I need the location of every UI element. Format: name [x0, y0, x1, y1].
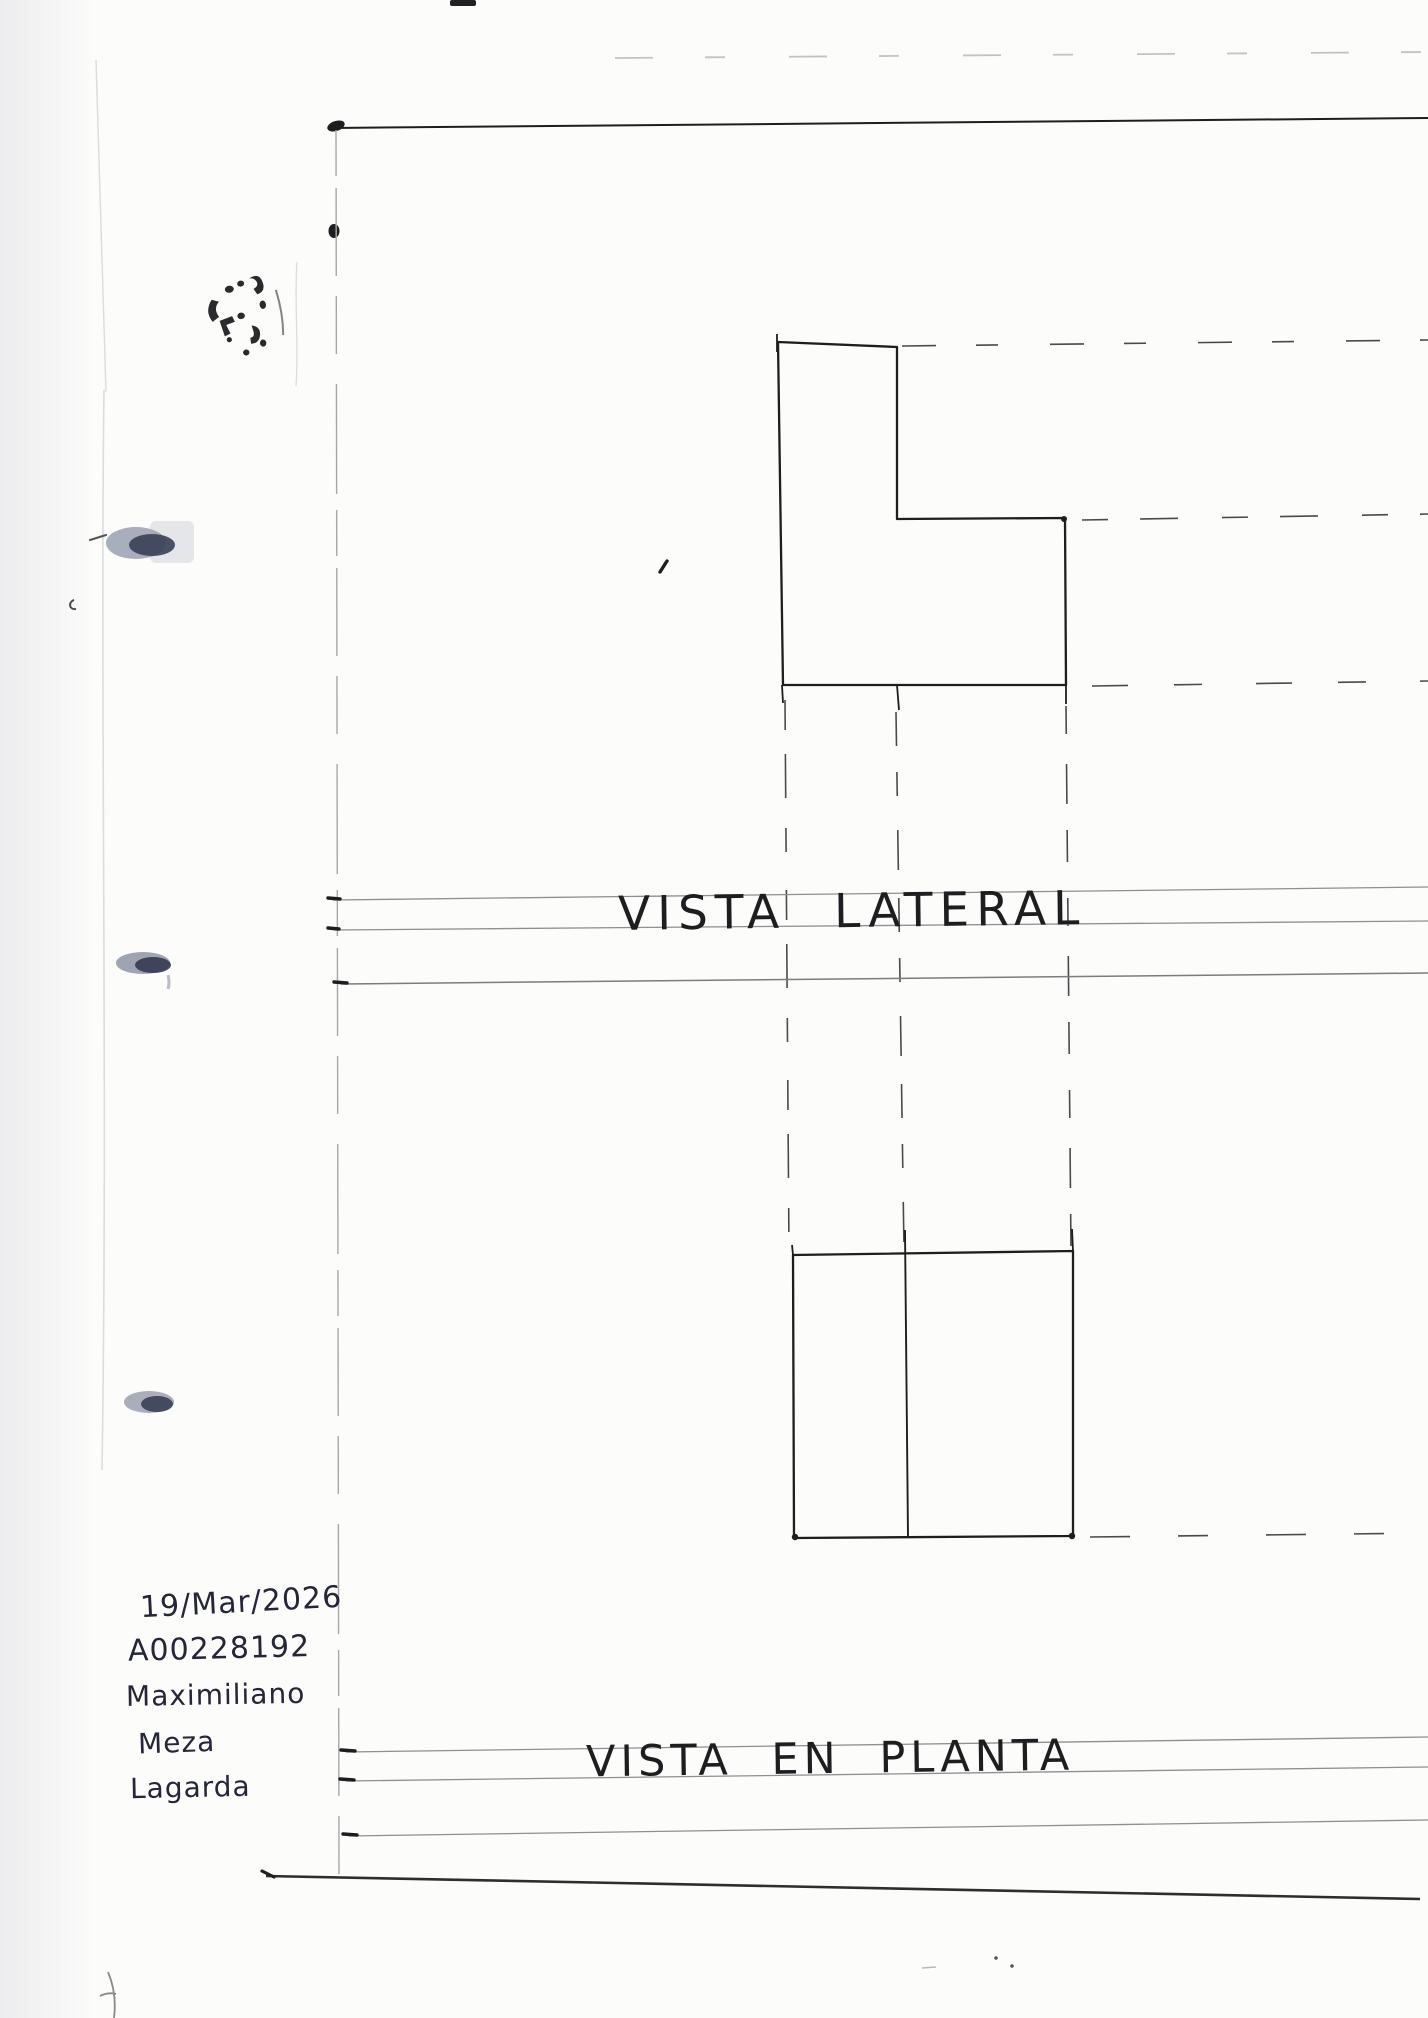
handwritten-name-last: Lagarda [130, 1762, 343, 1812]
handwritten-student-id: A00228192 [127, 1623, 342, 1675]
plan-corner-dot-right [1069, 1533, 1075, 1539]
binder-mark-icon [124, 1391, 174, 1413]
frame-top-line [333, 118, 1428, 128]
projection-dash-top [902, 340, 1428, 346]
margin-ink-blob [329, 224, 340, 238]
lateral-view-corner-dot [1061, 516, 1067, 522]
plan-guideline-start-ticks [340, 1750, 357, 1835]
handwritten-date: 19/Mar/2026 [139, 1575, 343, 1632]
pen-dot [994, 1956, 998, 1960]
plan-corner-dot-left [792, 1534, 798, 1540]
scanned-drawing-page: VISTA LATERAL VISTA EN PLANTA 19/Mar/202… [0, 0, 1428, 2018]
lateral-view-outline [778, 342, 1066, 685]
pen-mark-curl [70, 600, 76, 609]
projection-vdash-right [1066, 706, 1071, 1250]
pen-dot [1010, 1964, 1014, 1968]
paper-crease-left [102, 390, 104, 1470]
paper-crease-near-stamp [296, 262, 297, 386]
handwritten-name-first: Maximiliano [126, 1670, 343, 1720]
plan-dash-right [1090, 1533, 1428, 1537]
frame-bottom-line [266, 1876, 1420, 1899]
handwritten-info-block: 19/Mar/2026 A00228192 Maximiliano Meza L… [126, 1580, 342, 1810]
plan-section-line [349, 1820, 1428, 1836]
lateral-section-line [341, 973, 1428, 984]
lateral-view-stroke-overshoots [777, 334, 1066, 710]
paper-crease-top-left [96, 60, 106, 392]
plan-view-title: VISTA EN PLANTA [586, 1731, 1075, 1788]
binder-mark-icon [106, 521, 194, 563]
pen-mark-tick [660, 561, 667, 572]
faint-top-dashed-line [615, 52, 1428, 58]
pen-faint-dash [922, 1967, 936, 1968]
pen-squiggle-bottom-corner [100, 1972, 116, 2018]
plan-view-divider [905, 1230, 908, 1537]
projection-dash-bottom [1092, 681, 1428, 686]
scan-top-edge-mark [450, 0, 476, 6]
lateral-view-title: VISTA LATERAL [618, 881, 1087, 942]
handwritten-name-middle: Meza [137, 1714, 343, 1767]
binder-mark-icon [116, 952, 171, 989]
projection-dash-middle [1082, 514, 1428, 520]
projection-vdash-left [785, 700, 789, 1250]
ink-stamp-icon [204, 273, 286, 360]
plan-view-outline [793, 1251, 1073, 1538]
projection-vdash-center [896, 712, 904, 1250]
